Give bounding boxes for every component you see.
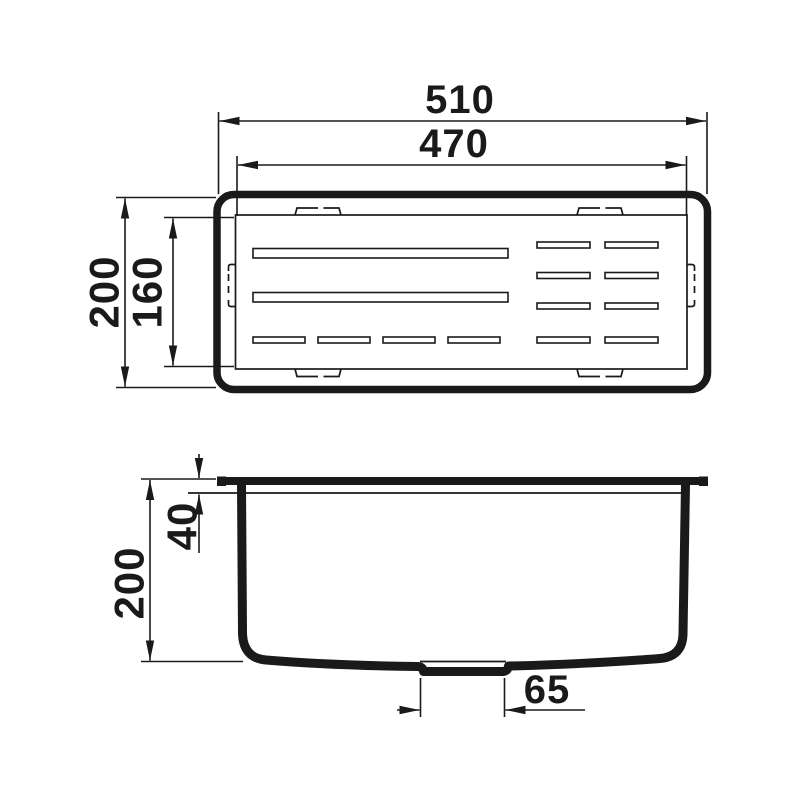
drain-slot (605, 303, 658, 309)
dim-label-470: 470 (419, 122, 489, 166)
flange-end-cap (699, 477, 708, 487)
drain-slot (537, 273, 590, 279)
dim-label-200-side: 200 (106, 546, 153, 619)
top-view: 510 470 200 160 (81, 78, 708, 390)
drain-slot (605, 242, 658, 248)
dimension-40: 40 (159, 454, 206, 553)
dim-label-200-top: 200 (81, 255, 128, 328)
drain-slot (537, 303, 590, 309)
drain-slot (383, 337, 435, 343)
drain-slot (253, 293, 508, 303)
drain-slot (605, 337, 658, 343)
flange-end-cap (217, 477, 226, 487)
drain-slot (537, 242, 590, 248)
dim-label-160: 160 (124, 255, 171, 328)
drain-slot (253, 249, 508, 259)
drain-slot (253, 337, 305, 343)
side-view: 200 40 65 (106, 454, 709, 717)
dim-label-65: 65 (524, 668, 571, 712)
drain-slot (537, 337, 590, 343)
drain-slot (605, 273, 658, 279)
technical-drawing-canvas: 510 470 200 160 (0, 0, 800, 800)
drain-slot (448, 337, 500, 343)
technical-drawing-page: 510 470 200 160 (0, 0, 800, 800)
dim-label-40: 40 (159, 502, 206, 551)
bowl-profile (242, 485, 686, 672)
drain-slot (318, 337, 370, 343)
dim-label-510: 510 (425, 78, 495, 122)
